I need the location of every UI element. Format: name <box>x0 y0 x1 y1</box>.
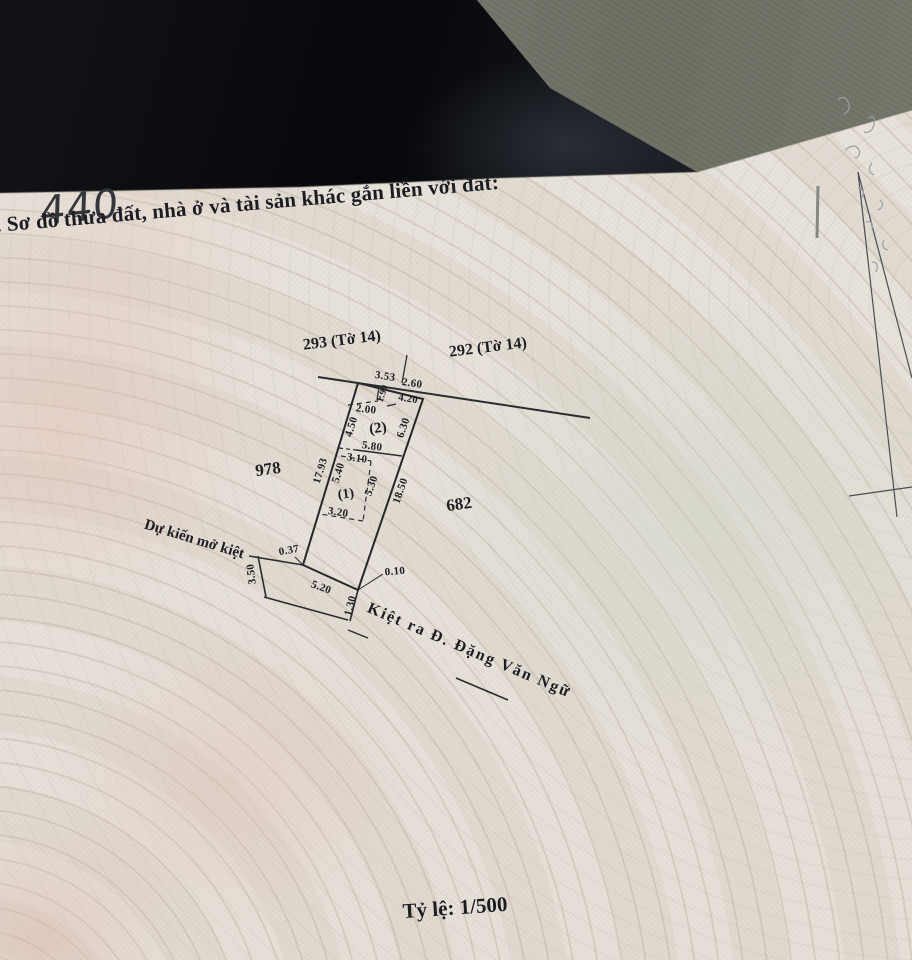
pen-line-a <box>858 172 912 378</box>
bracket-mark <box>817 186 818 238</box>
plot-label-978: 978 <box>254 459 282 479</box>
measure-2-00: 2.00 <box>355 403 377 416</box>
alley-endcap <box>258 556 266 597</box>
subplot-2-label: (2) <box>368 420 387 437</box>
street-label-underline <box>456 678 508 700</box>
alley-lower-line-cont <box>348 630 368 638</box>
measure-3-50: 3.50 <box>245 563 258 585</box>
subplot-1-label: (1) <box>337 487 355 503</box>
plot-label-682: 682 <box>445 494 473 514</box>
alley-lower-line <box>264 597 348 620</box>
measure-0-10: 0.10 <box>384 566 405 579</box>
pen-cross-line <box>849 487 912 496</box>
land-plot-diagram <box>0 0 912 960</box>
small-dash <box>387 404 396 406</box>
subplot-divider-dash <box>339 448 356 450</box>
photo-of-land-certificate: { "colors": { "paper": "#e7e3dc", "fabri… <box>0 0 912 960</box>
pen-line-b <box>858 172 897 517</box>
